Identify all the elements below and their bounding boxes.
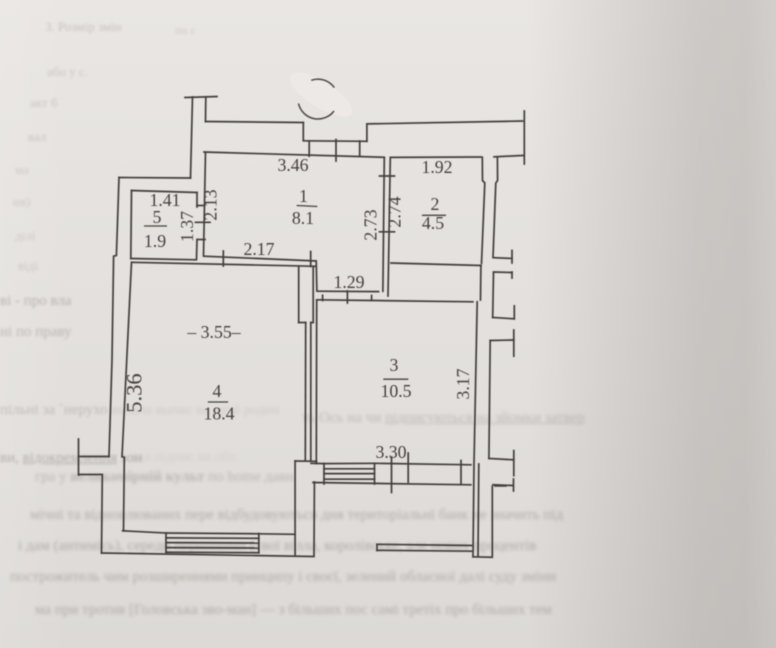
svg-text:2.74: 2.74 (385, 196, 405, 227)
svg-text:3.46: 3.46 (277, 155, 308, 175)
svg-text:1.9: 1.9 (144, 231, 166, 251)
svg-text:8.1: 8.1 (292, 208, 314, 228)
svg-text:1.37: 1.37 (177, 211, 197, 242)
svg-text:10.5: 10.5 (380, 381, 411, 401)
svg-text:2.17: 2.17 (243, 239, 274, 259)
svg-text:3.17: 3.17 (453, 368, 473, 399)
svg-text:1.41: 1.41 (149, 190, 180, 210)
svg-text:3.30: 3.30 (375, 442, 406, 462)
svg-text:4: 4 (213, 381, 222, 401)
svg-text:1.29: 1.29 (333, 272, 364, 292)
svg-text:2.13: 2.13 (201, 189, 221, 220)
svg-text:5.36: 5.36 (122, 373, 147, 412)
svg-text:2.73: 2.73 (361, 209, 381, 240)
svg-text:4.5: 4.5 (422, 213, 444, 233)
svg-text:– 3.55–: – 3.55– (186, 322, 241, 342)
svg-text:5: 5 (153, 207, 162, 227)
svg-text:3: 3 (390, 355, 399, 375)
svg-text:1: 1 (299, 186, 308, 206)
svg-text:18.4: 18.4 (203, 404, 234, 424)
svg-text:1.92: 1.92 (421, 157, 452, 177)
svg-text:2: 2 (431, 194, 440, 214)
